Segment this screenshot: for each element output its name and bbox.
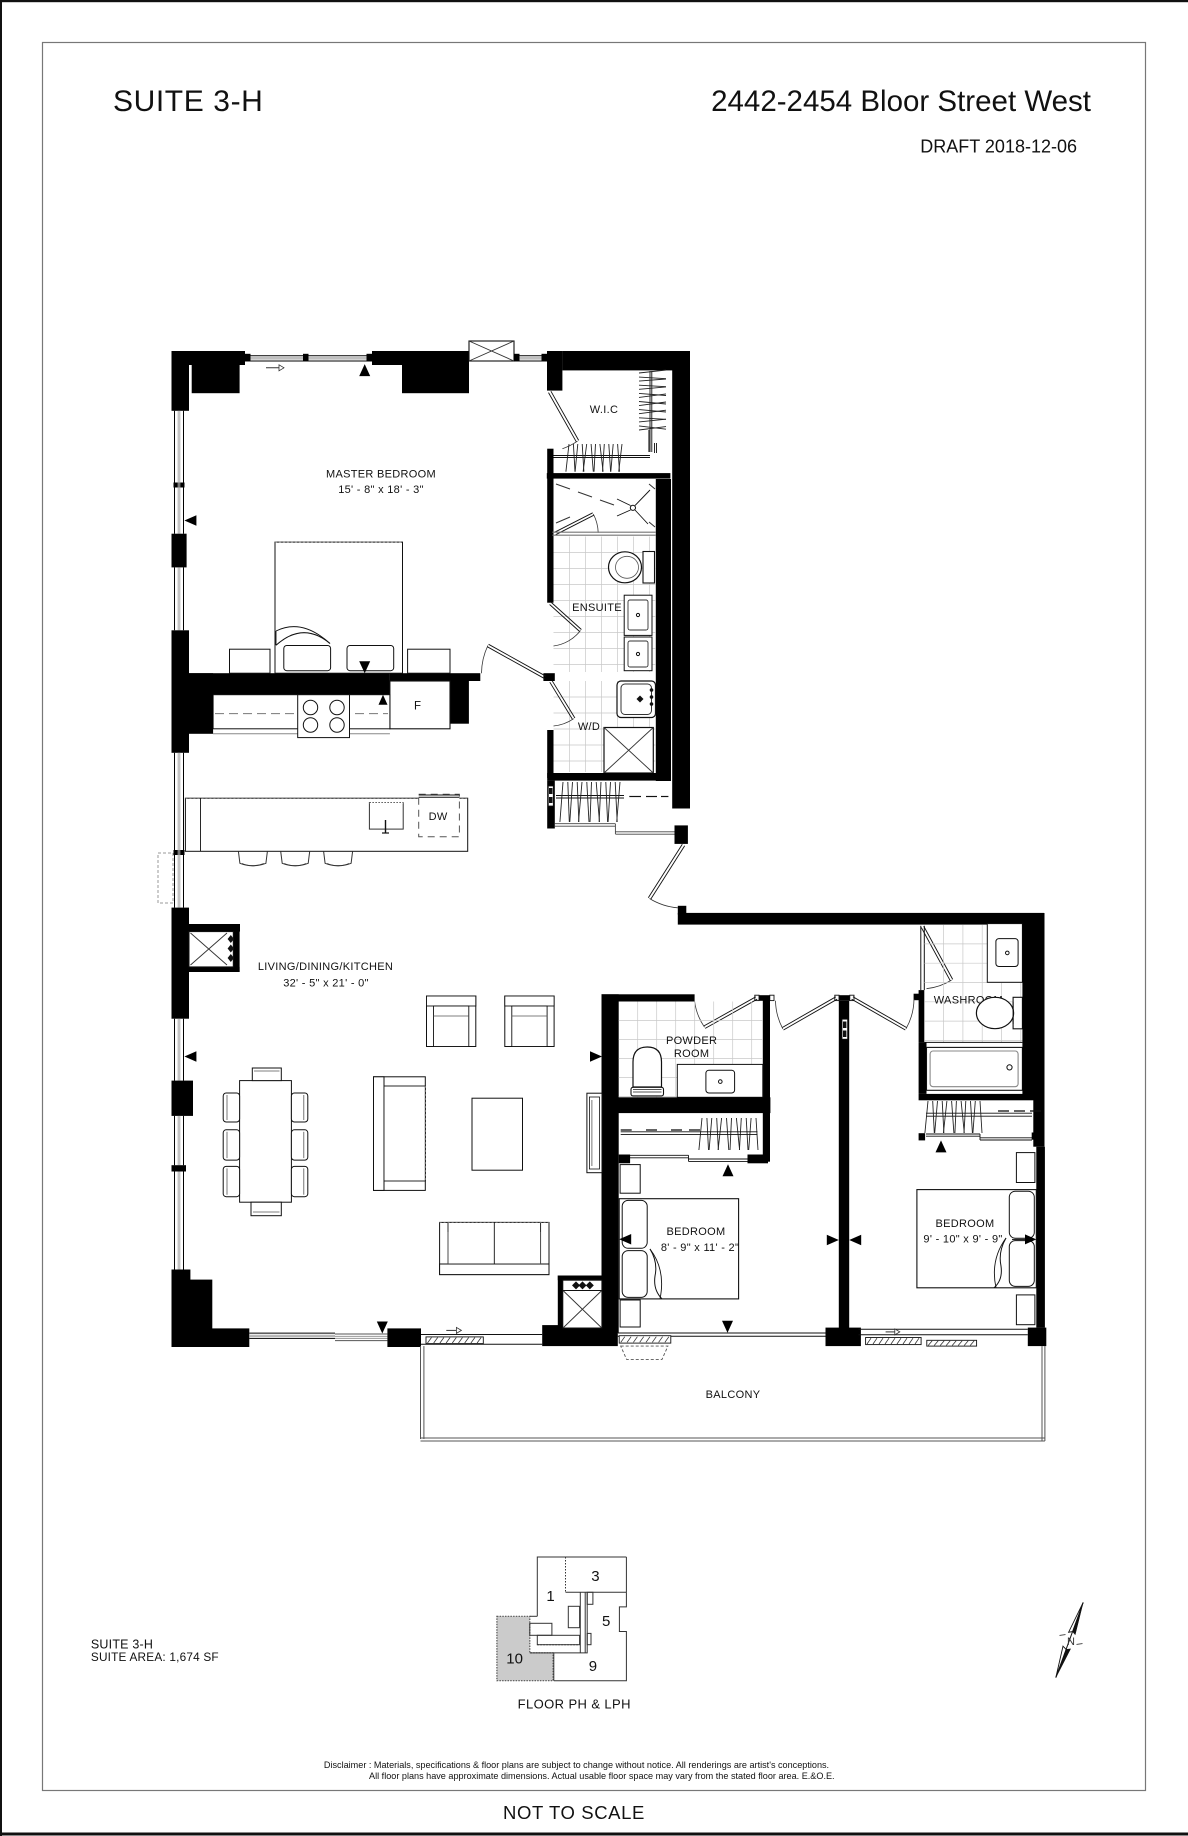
svg-text:DRAFT 2018-12-06: DRAFT 2018-12-06 — [920, 137, 1077, 157]
svg-text:F: F — [414, 701, 421, 713]
svg-text:5: 5 — [602, 1613, 610, 1630]
svg-text:SUITE 3-H: SUITE 3-H — [113, 85, 263, 118]
svg-text:9' - 10" x 9' - 9": 9' - 10" x 9' - 9" — [923, 1234, 1002, 1246]
svg-text:W.I.C: W.I.C — [590, 404, 618, 416]
svg-text:32' - 5" x 21' - 0": 32' - 5" x 21' - 0" — [283, 978, 369, 990]
svg-text:DW: DW — [429, 811, 448, 823]
svg-text:2442-2454 Bloor Street West: 2442-2454 Bloor Street West — [711, 85, 1091, 118]
svg-text:ROOM: ROOM — [674, 1048, 709, 1060]
svg-text:N: N — [1067, 1636, 1075, 1648]
svg-text:ENSUITE: ENSUITE — [572, 602, 622, 614]
svg-text:All floor plans have approxima: All floor plans have approximate dimensi… — [369, 1771, 835, 1781]
svg-text:Disclaimer : Materials, specif: Disclaimer : Materials, specifications &… — [324, 1760, 829, 1770]
svg-text:10: 10 — [506, 1651, 523, 1668]
svg-text:SUITE AREA: 1,674 SF: SUITE AREA: 1,674 SF — [91, 1650, 219, 1664]
svg-text:1: 1 — [546, 1588, 554, 1605]
svg-text:BEDROOM: BEDROOM — [936, 1218, 995, 1230]
svg-text:MASTER BEDROOM: MASTER BEDROOM — [326, 469, 436, 481]
svg-text:9: 9 — [589, 1658, 597, 1675]
svg-text:15' - 8" x 18' - 3": 15' - 8" x 18' - 3" — [338, 484, 424, 496]
svg-text:3: 3 — [591, 1568, 599, 1585]
svg-text:FLOOR PH & LPH: FLOOR PH & LPH — [518, 1697, 631, 1712]
svg-text:BEDROOM: BEDROOM — [667, 1226, 726, 1238]
svg-text:SUITE 3-H: SUITE 3-H — [91, 1637, 153, 1651]
svg-text:LIVING/DINING/KITCHEN: LIVING/DINING/KITCHEN — [258, 961, 393, 973]
svg-text:W/D: W/D — [578, 721, 600, 733]
svg-text:POWDER: POWDER — [666, 1035, 717, 1047]
svg-text:NOT TO SCALE: NOT TO SCALE — [503, 1802, 645, 1823]
svg-text:8' - 9" x 11' - 2": 8' - 9" x 11' - 2" — [661, 1242, 739, 1254]
svg-text:BALCONY: BALCONY — [706, 1389, 761, 1401]
